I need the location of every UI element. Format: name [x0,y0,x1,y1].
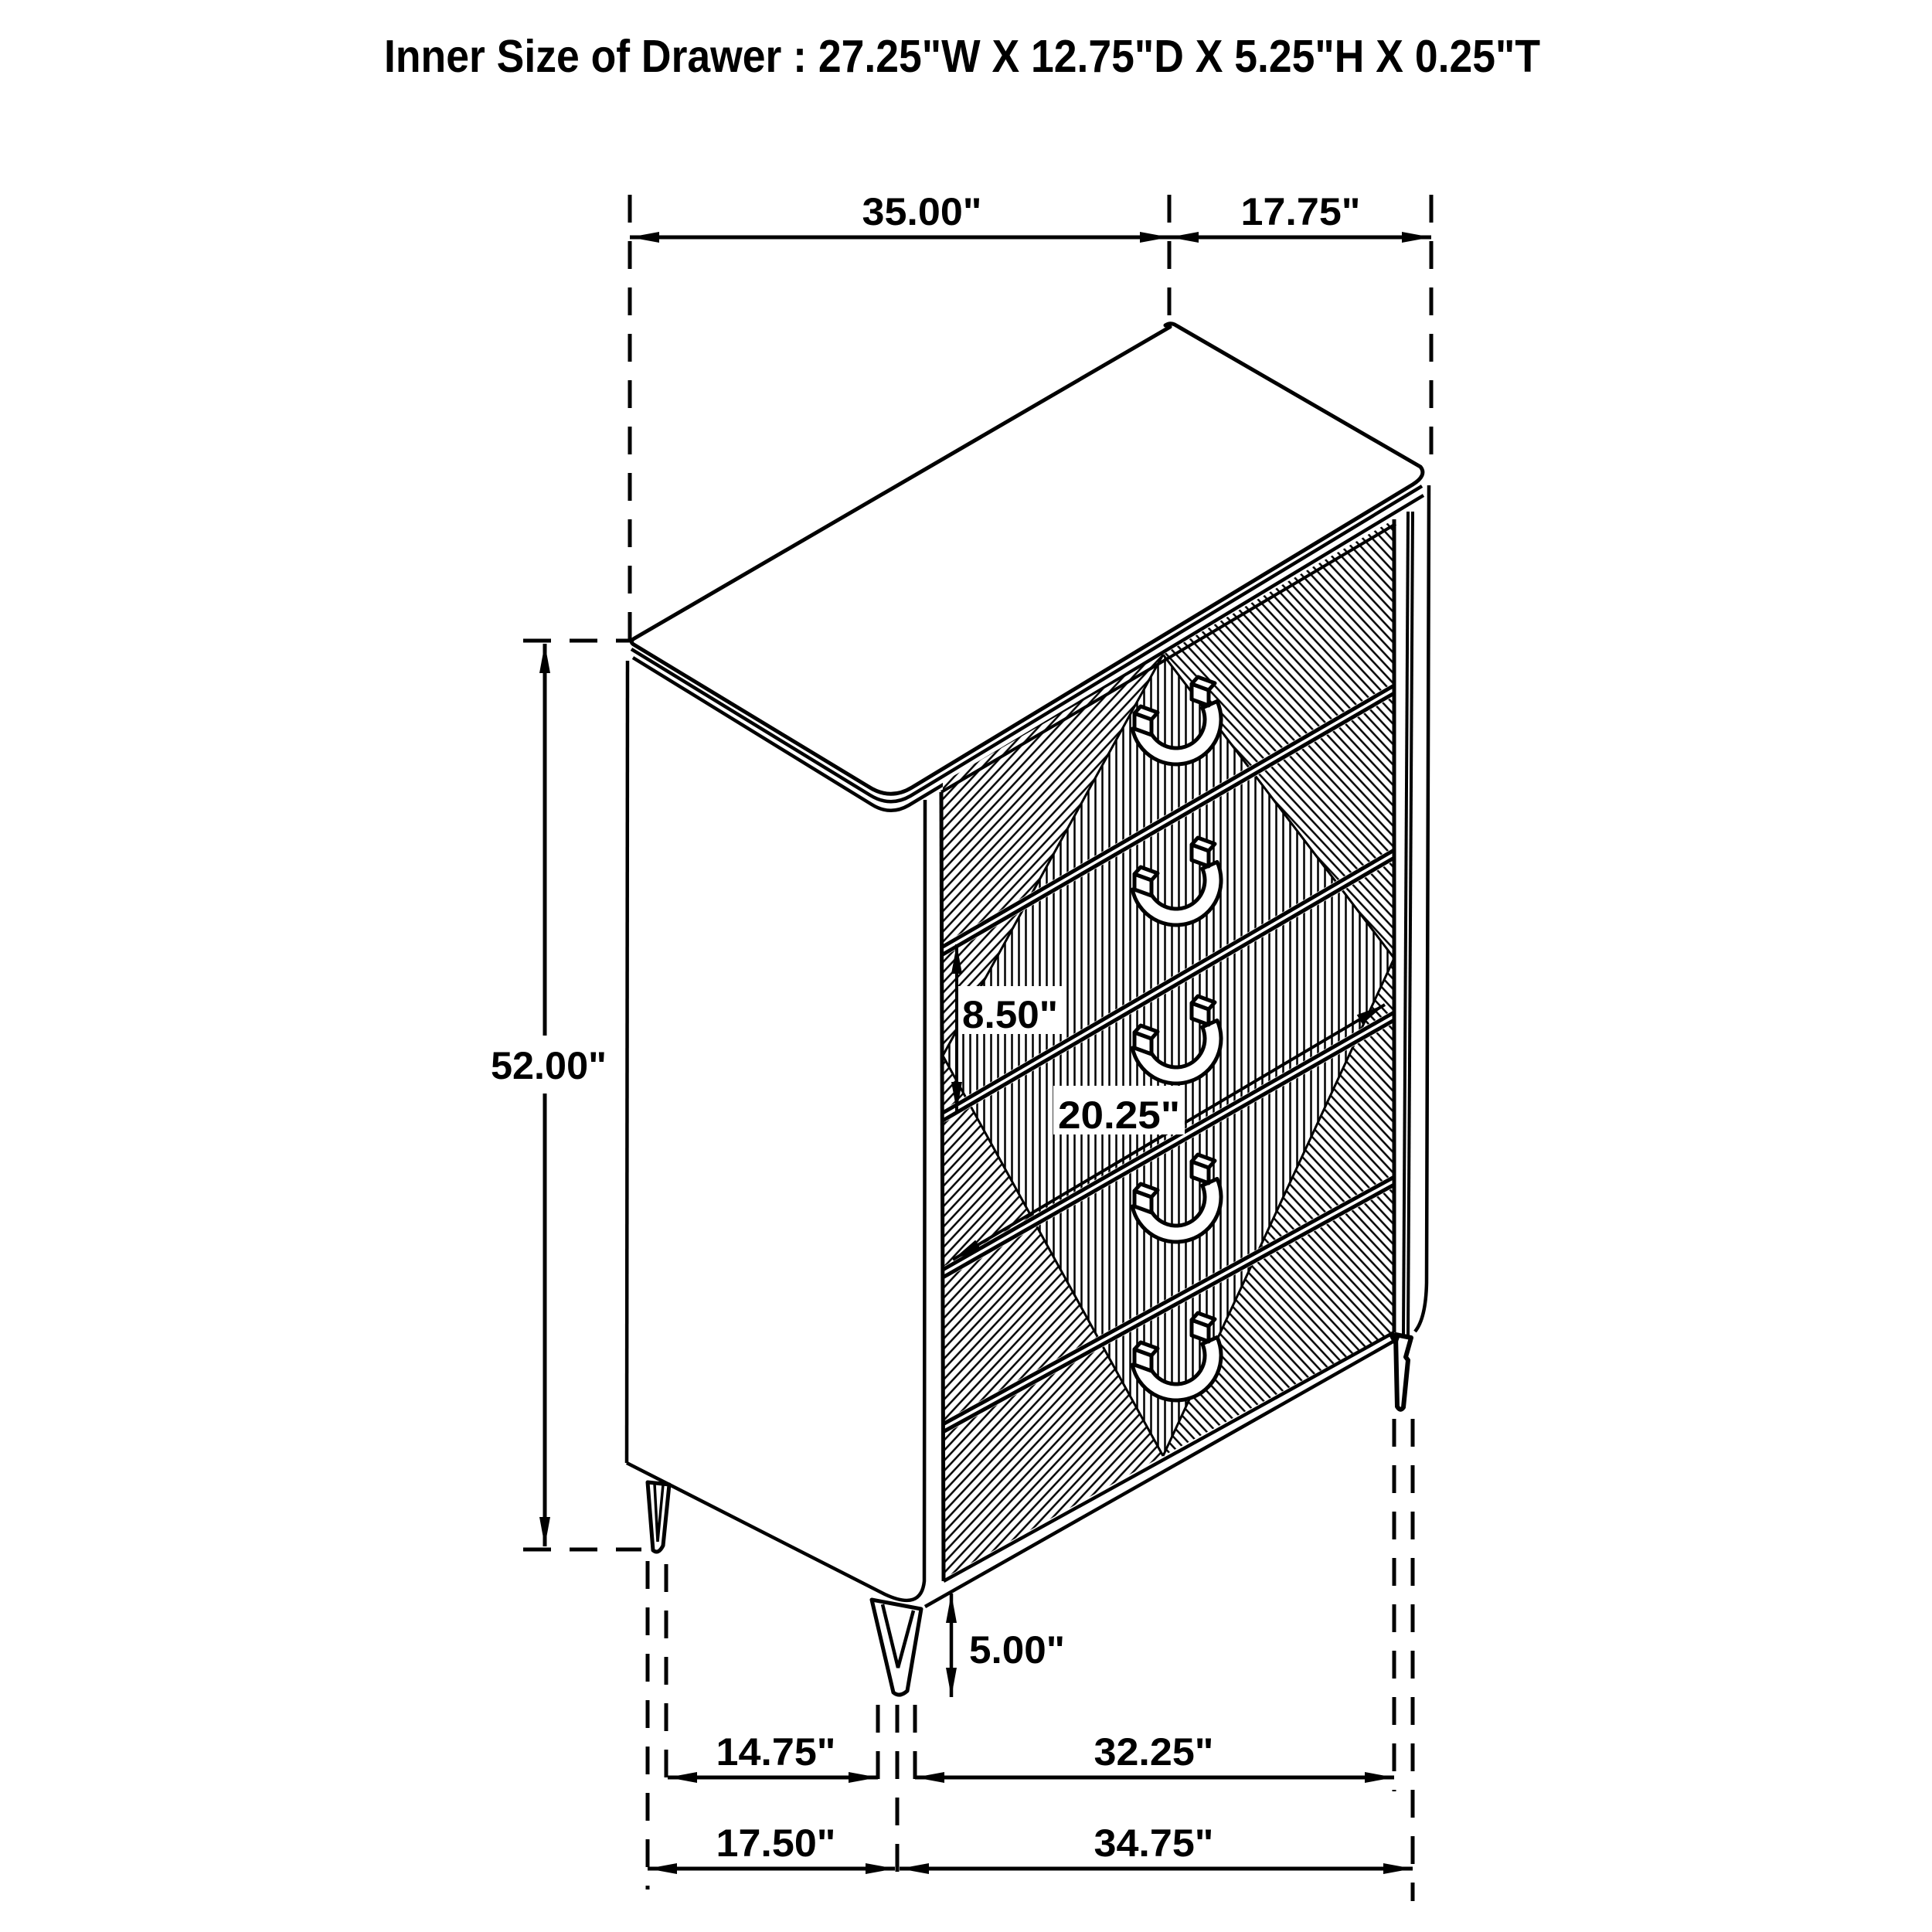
svg-text:32.25": 32.25" [1094,1730,1214,1774]
svg-text:8.50": 8.50" [962,993,1058,1036]
svg-text:20.25": 20.25" [1058,1094,1180,1137]
svg-text:5.00": 5.00" [969,1628,1065,1672]
svg-text:17.75": 17.75" [1241,190,1361,233]
svg-text:14.75": 14.75" [716,1730,836,1774]
svg-text:17.50": 17.50" [716,1821,836,1865]
svg-text:34.75": 34.75" [1094,1821,1214,1865]
svg-text:Inner Size of Drawer : 27.25"W: Inner Size of Drawer : 27.25"W X 12.75"D… [384,31,1540,82]
svg-text:52.00": 52.00" [491,1044,607,1087]
svg-text:35.00": 35.00" [862,190,982,233]
